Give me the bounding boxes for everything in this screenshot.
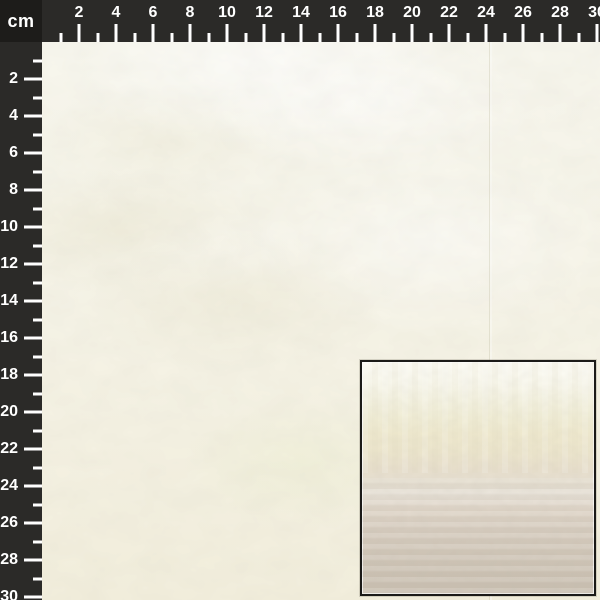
ruler-tick-major [24, 263, 42, 266]
ruler-vertical: 24681012141618202224262830 [0, 42, 42, 600]
ruler-tick-label: 28 [551, 4, 569, 22]
ruler-tick-major [24, 559, 42, 562]
ruler-tick-label: 16 [329, 4, 347, 22]
ruler-tick-label: 2 [75, 4, 84, 22]
ruler-tick-minor [318, 33, 321, 42]
ruler-tick-major [374, 24, 377, 42]
ruler-tick-minor [429, 33, 432, 42]
ruler-tick-major [411, 24, 414, 42]
ruler-tick-minor [33, 133, 42, 136]
ruler-tick-label: 26 [0, 514, 18, 532]
ruler-corner: cm [0, 0, 42, 42]
ruler-tick-major [226, 24, 229, 42]
ruler-tick-major [24, 152, 42, 155]
ruler-tick-label: 8 [186, 4, 195, 22]
ruler-tick-major [24, 522, 42, 525]
ruler-tick-label: 4 [112, 4, 121, 22]
ruler-tick-label: 20 [403, 4, 421, 22]
ruler-tick-minor [96, 33, 99, 42]
ruler-tick-minor [281, 33, 284, 42]
ruler-tick-minor [33, 207, 42, 210]
ruler-tick-label: 10 [218, 4, 236, 22]
ruler-tick-major [448, 24, 451, 42]
ruler-tick-minor [33, 318, 42, 321]
ruler-tick-major [24, 78, 42, 81]
ruler-tick-major [24, 448, 42, 451]
ruler-tick-major [189, 24, 192, 42]
ruler-tick-major [485, 24, 488, 42]
ruler-tick-label: 16 [0, 329, 18, 347]
ruler-tick-label: 12 [0, 255, 18, 273]
ruler-tick-label: 14 [292, 4, 310, 22]
ruler-tick-label: 22 [440, 4, 458, 22]
ruler-tick-major [24, 374, 42, 377]
ruler-tick-minor [33, 429, 42, 432]
ruler-tick-major [24, 189, 42, 192]
ruler-horizontal: 24681012141618202224262830 [42, 0, 600, 42]
ruler-tick-label: 24 [477, 4, 495, 22]
ruler-tick-major [24, 300, 42, 303]
ruler-unit-label: cm [7, 11, 34, 32]
ruler-tick-minor [355, 33, 358, 42]
ruler-tick-minor [33, 392, 42, 395]
ruler-tick-major [24, 115, 42, 118]
ruler-tick-minor [33, 503, 42, 506]
ruler-tick-major [522, 24, 525, 42]
ruler-tick-minor [466, 33, 469, 42]
ruler-tick-major [559, 24, 562, 42]
ruler-tick-label: 22 [0, 440, 18, 458]
ruler-tick-minor [33, 355, 42, 358]
ruler-tick-minor [540, 33, 543, 42]
ruler-tick-label: 28 [0, 551, 18, 569]
ruler-tick-minor [59, 33, 62, 42]
ruler-tick-label: 4 [9, 107, 18, 125]
ruler-tick-major [300, 24, 303, 42]
ruler-tick-label: 10 [0, 218, 18, 236]
ruler-tick-minor [503, 33, 506, 42]
magnifier-content [362, 362, 594, 594]
knit-columns-overlay [362, 362, 594, 473]
ruler-tick-major [24, 411, 42, 414]
ruler-tick-minor [33, 540, 42, 543]
ruler-tick-major [115, 24, 118, 42]
ruler-tick-minor [392, 33, 395, 42]
weave-bands-overlay [362, 478, 594, 594]
ruler-tick-minor [207, 33, 210, 42]
ruler-tick-minor [33, 170, 42, 173]
ruler-tick-major [24, 226, 42, 229]
ruler-tick-label: 6 [149, 4, 158, 22]
ruler-tick-minor [33, 466, 42, 469]
measurement-viewer: 24681012141618202224262830 2468101214161… [0, 0, 600, 600]
ruler-tick-label: 14 [0, 292, 18, 310]
ruler-tick-minor [133, 33, 136, 42]
ruler-tick-minor [244, 33, 247, 42]
ruler-tick-minor [577, 33, 580, 42]
ruler-tick-major [24, 337, 42, 340]
ruler-tick-minor [33, 96, 42, 99]
ruler-tick-major [596, 24, 599, 42]
ruler-tick-label: 2 [9, 70, 18, 88]
magnifier-inset [360, 360, 596, 596]
ruler-tick-label: 18 [366, 4, 384, 22]
ruler-tick-major [24, 485, 42, 488]
ruler-tick-label: 18 [0, 366, 18, 384]
ruler-tick-label: 8 [9, 181, 18, 199]
ruler-tick-major [24, 596, 42, 599]
ruler-tick-label: 24 [0, 477, 18, 495]
ruler-tick-minor [33, 281, 42, 284]
ruler-tick-label: 12 [255, 4, 273, 22]
ruler-tick-minor [33, 59, 42, 62]
ruler-tick-major [78, 24, 81, 42]
ruler-tick-label: 30 [588, 4, 600, 22]
ruler-tick-major [337, 24, 340, 42]
ruler-tick-label: 6 [9, 144, 18, 162]
ruler-tick-minor [33, 577, 42, 580]
ruler-tick-major [263, 24, 266, 42]
ruler-tick-label: 30 [0, 588, 18, 600]
ruler-tick-major [152, 24, 155, 42]
ruler-tick-minor [170, 33, 173, 42]
ruler-tick-minor [33, 244, 42, 247]
ruler-tick-label: 26 [514, 4, 532, 22]
ruler-tick-label: 20 [0, 403, 18, 421]
